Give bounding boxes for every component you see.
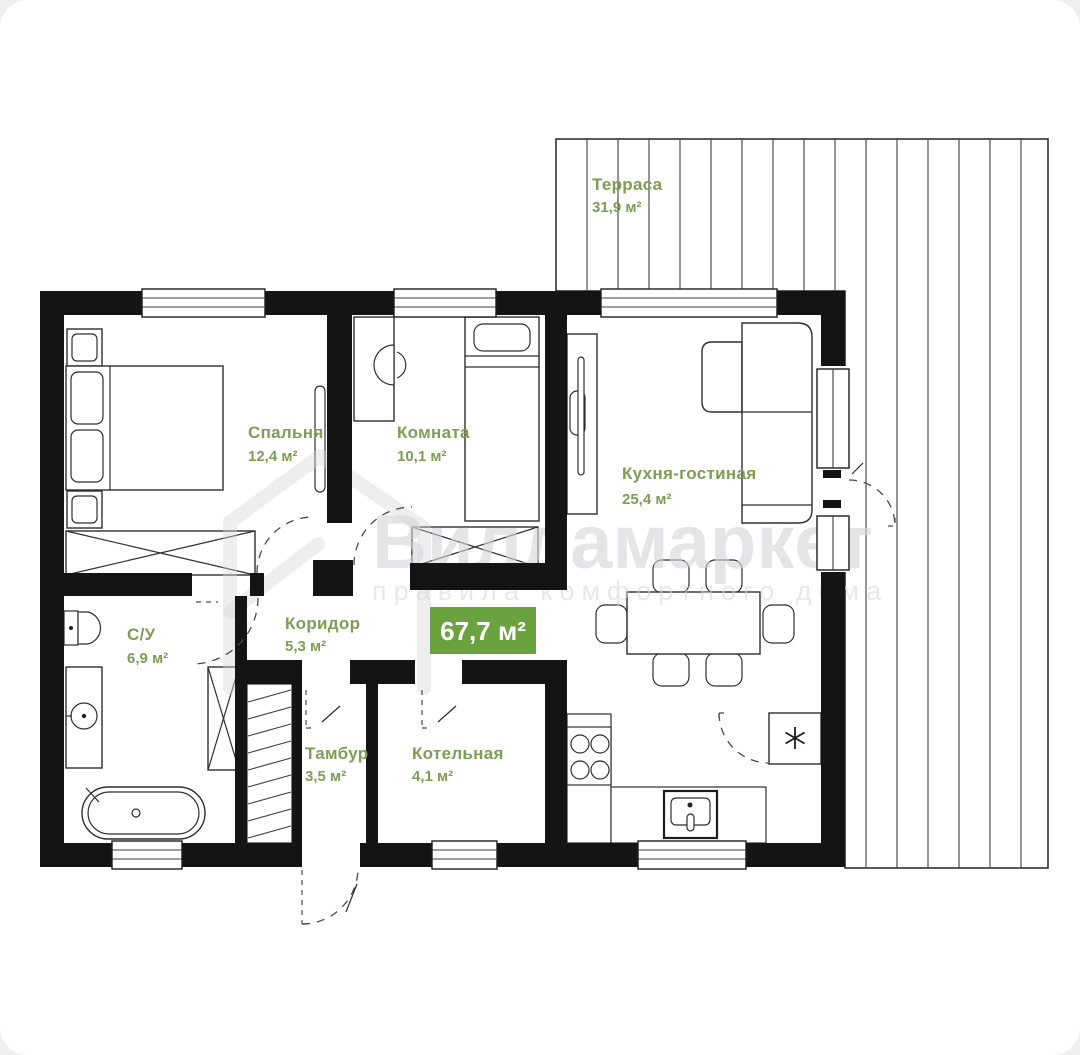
pillow bbox=[71, 372, 103, 424]
bathtub bbox=[82, 787, 205, 839]
fridge-door-arc bbox=[719, 713, 769, 763]
bathroom-furniture bbox=[64, 611, 239, 839]
room-label-boiler: Котельная 4,1 м² bbox=[412, 744, 504, 785]
window bbox=[601, 289, 777, 317]
boiler-door-leaf bbox=[438, 706, 456, 722]
chair bbox=[706, 653, 742, 686]
wall-boiler-kitchen bbox=[545, 660, 567, 843]
window bbox=[394, 289, 496, 317]
room-area: 31,9 м² bbox=[592, 199, 641, 216]
wall-left bbox=[40, 291, 64, 867]
fridge-door-mark bbox=[719, 713, 729, 723]
floor-plan-page: Вилламаркет правила комфортного дома bbox=[0, 0, 1080, 1055]
faucet bbox=[687, 814, 694, 831]
room-label-room: Комната 10,1 м² bbox=[397, 423, 470, 465]
chair bbox=[763, 605, 794, 643]
total-area-badge: 67,7 м² bbox=[430, 607, 536, 654]
room-area: 5,3 м² bbox=[285, 638, 326, 655]
vestibule-door-leaf bbox=[322, 706, 340, 722]
washbasin bbox=[66, 667, 102, 768]
room-area: 6,9 м² bbox=[127, 650, 168, 667]
pillow bbox=[474, 324, 530, 351]
toilet bbox=[64, 611, 100, 645]
room-area: 4,1 м² bbox=[412, 768, 453, 785]
room-area: 12,4 м² bbox=[248, 448, 297, 465]
window bbox=[142, 289, 265, 317]
entrance-door-leaf bbox=[346, 884, 357, 912]
single-bed bbox=[465, 317, 539, 521]
wall-vestibule-left bbox=[292, 660, 302, 867]
room-name: Котельная bbox=[412, 744, 504, 763]
room-name: Тамбур bbox=[305, 744, 368, 763]
kitchen-sink bbox=[664, 791, 717, 838]
wall-vestibule-boiler bbox=[366, 684, 378, 843]
room-area: 10,1 м² bbox=[397, 448, 446, 465]
room-area: 25,4 м² bbox=[622, 491, 671, 508]
window bbox=[112, 841, 182, 869]
vestibule-door-mark bbox=[306, 690, 314, 728]
pillow bbox=[71, 430, 103, 482]
total-area-value: 67,7 м² bbox=[440, 616, 526, 646]
wall-bathroom-right bbox=[235, 596, 247, 843]
chair bbox=[653, 653, 689, 686]
wall-corridor-lower-3 bbox=[462, 660, 545, 684]
wall-bedroom-bathroom bbox=[64, 573, 192, 596]
wall-bedroom-room bbox=[327, 315, 352, 523]
entrance-door-opening bbox=[302, 843, 360, 867]
room-name: Терраса bbox=[592, 175, 663, 194]
wall-corridor-lower-1 bbox=[235, 660, 298, 684]
hall-closet bbox=[247, 684, 292, 843]
corner-sofa bbox=[702, 323, 812, 523]
boiler-door-mark bbox=[422, 690, 430, 728]
wall-post bbox=[250, 573, 264, 596]
wall-room-kitchen bbox=[545, 315, 567, 580]
double-bed bbox=[66, 366, 223, 490]
room-name: Комната bbox=[397, 423, 470, 442]
room-label-corridor: Коридор 5,3 м² bbox=[285, 614, 360, 655]
wall-corridor-lower-2 bbox=[350, 660, 415, 684]
room-label-vestibule: Тамбур 3,5 м² bbox=[305, 744, 368, 785]
tv bbox=[578, 357, 584, 475]
fridge bbox=[769, 713, 821, 764]
room-name: Кухня-гостиная bbox=[622, 464, 756, 483]
room-name: Спальня bbox=[248, 423, 324, 442]
wall-room-corridor bbox=[410, 563, 567, 590]
tv-stand bbox=[567, 334, 597, 514]
room-label-bathroom: С/У 6,9 м² bbox=[127, 625, 168, 667]
entrance-door-arc bbox=[302, 868, 358, 924]
entrance-door-mark bbox=[302, 870, 310, 924]
room-area: 3,5 м² bbox=[305, 768, 346, 785]
room-name: Коридор bbox=[285, 614, 360, 633]
floor-plan-drawing: Вилламаркет правила комфортного дома bbox=[0, 0, 1080, 1055]
stove bbox=[567, 727, 611, 785]
room-name: С/У bbox=[127, 625, 156, 644]
wall-stub bbox=[313, 560, 353, 596]
window bbox=[638, 841, 746, 869]
terrace-door bbox=[817, 366, 849, 572]
chair bbox=[596, 605, 627, 643]
window bbox=[432, 841, 497, 869]
